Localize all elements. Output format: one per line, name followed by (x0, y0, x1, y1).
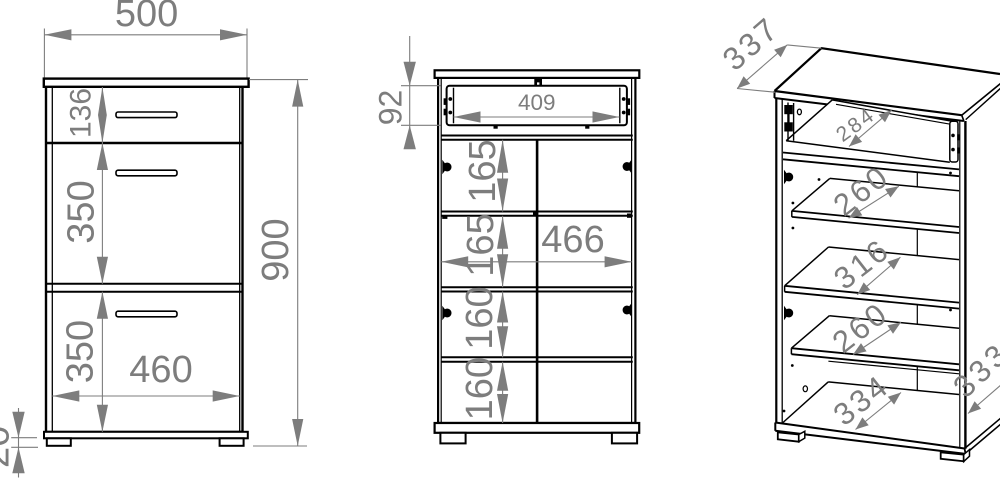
svg-text:409: 409 (518, 90, 556, 115)
svg-text:136: 136 (65, 88, 98, 138)
svg-text:160: 160 (459, 286, 501, 349)
svg-text:20: 20 (0, 426, 18, 468)
svg-text:350: 350 (61, 180, 103, 243)
svg-text:900: 900 (255, 218, 297, 281)
svg-text:500: 500 (115, 0, 178, 35)
svg-text:350: 350 (60, 320, 102, 383)
svg-text:160: 160 (459, 357, 501, 420)
svg-text:92: 92 (373, 90, 409, 126)
svg-text:165: 165 (462, 139, 504, 202)
svg-text:466: 466 (541, 219, 604, 261)
svg-text:460: 460 (129, 349, 192, 391)
svg-text:165: 165 (460, 213, 502, 276)
